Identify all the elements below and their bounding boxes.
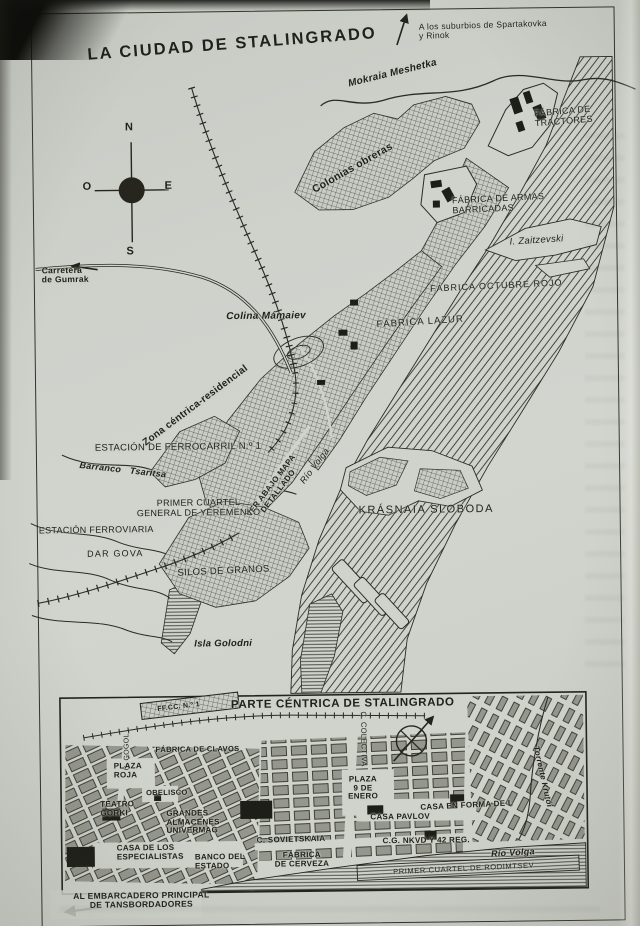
- page-edge-right: [618, 0, 640, 926]
- page-shadow-left: [0, 0, 12, 480]
- map-frame: [31, 6, 626, 926]
- page-shadow-top: [0, 0, 430, 11]
- book-page-photo: LA CIUDAD DE STALINGRADO A los suburbios…: [0, 0, 640, 926]
- map-page: LA CIUDAD DE STALINGRADO A los suburbios…: [0, 0, 640, 926]
